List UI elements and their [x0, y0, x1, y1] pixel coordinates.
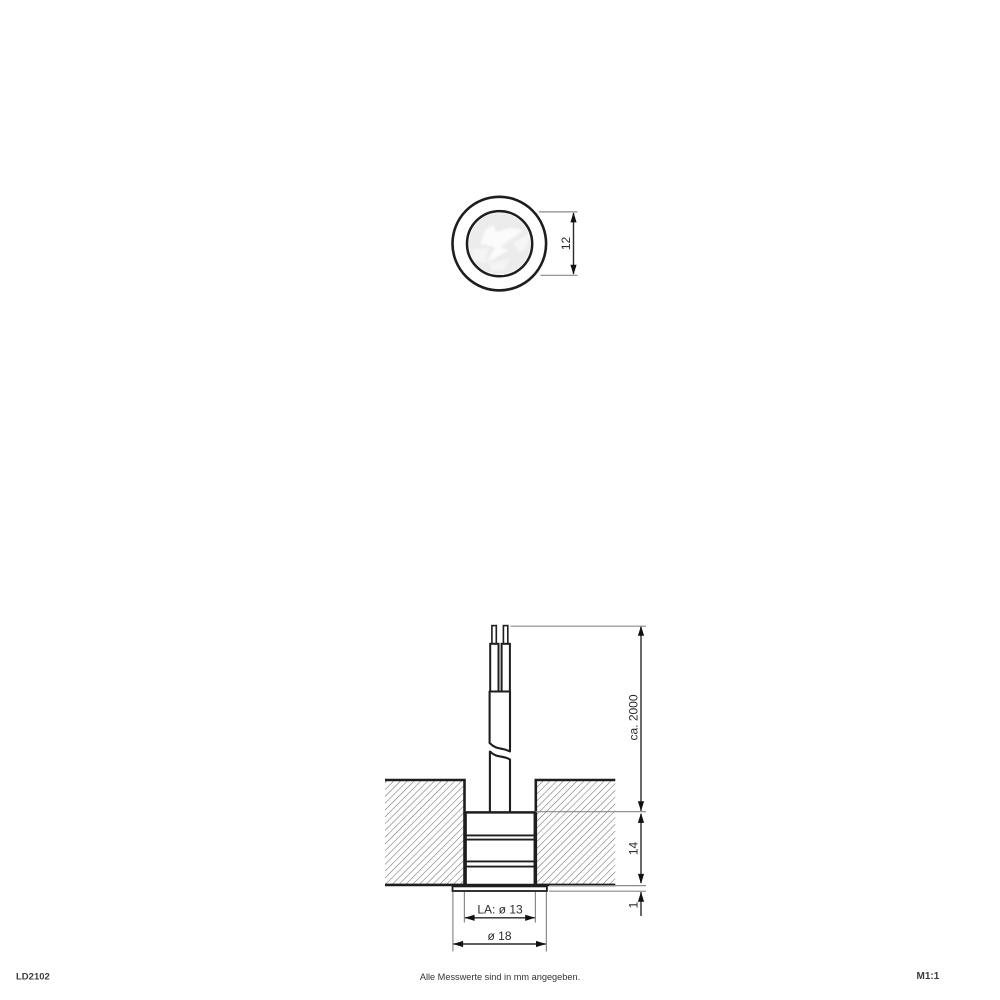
svg-text:LD2102: LD2102 [16, 972, 50, 983]
svg-text:12: 12 [559, 237, 573, 251]
svg-text:ca. 2000: ca. 2000 [627, 694, 641, 740]
svg-text:M1:1: M1:1 [917, 971, 940, 982]
svg-text:ø 18: ø 18 [487, 929, 511, 943]
svg-text:14: 14 [627, 842, 641, 856]
svg-text:LA: ø 13: LA: ø 13 [477, 903, 523, 917]
svg-text:Alle Messwerte sind in mm ange: Alle Messwerte sind in mm angegeben. [420, 972, 580, 982]
svg-text:1: 1 [627, 901, 641, 908]
